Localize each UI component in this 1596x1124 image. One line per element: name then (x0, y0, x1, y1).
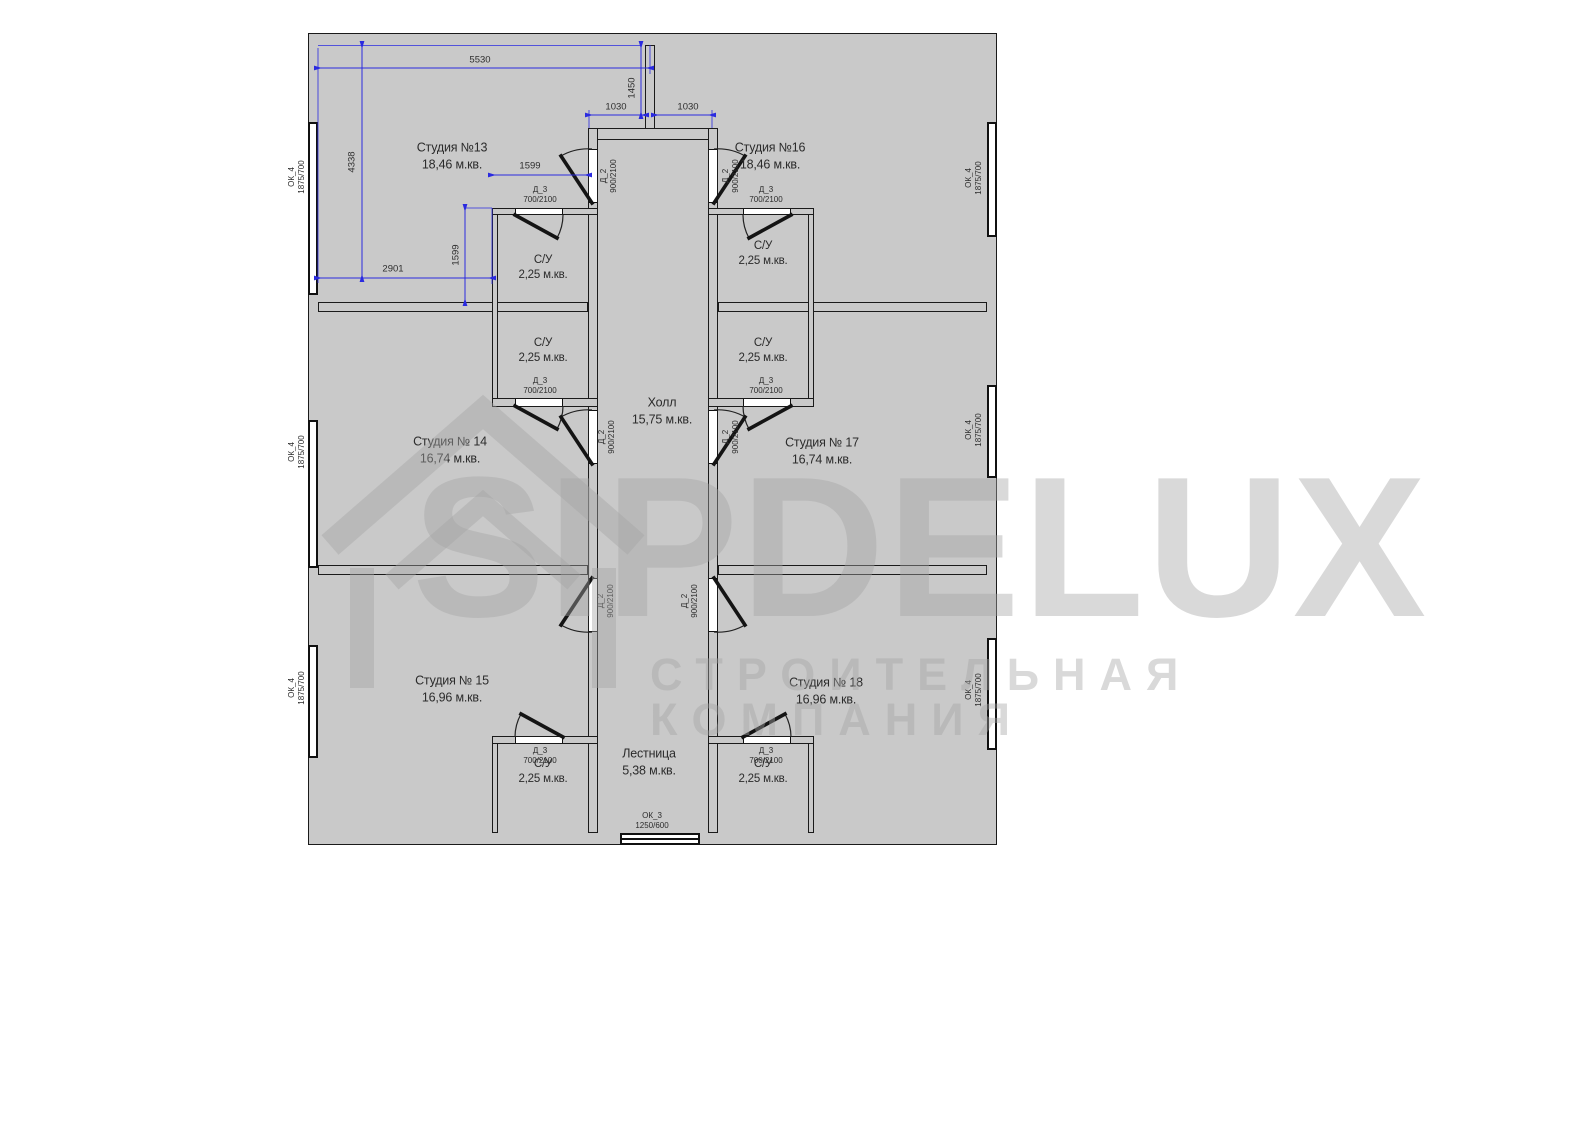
window-label-ok4: ОК_4 1875/700 (964, 161, 984, 194)
room-label-studio13: Студия №13 18,46 м.кв. (417, 140, 488, 173)
room-label-hall: Холл 15,75 м.кв. (632, 395, 692, 428)
door-label-d2: Д_2 900/2100 (597, 420, 617, 453)
dimension-1030-right: 1030 (677, 102, 698, 113)
room-label-stairs: Лестница 5,38 м.кв. (622, 746, 676, 779)
area-label: 16,74 м.кв. (792, 452, 852, 466)
area-label: 16,74 м.кв. (420, 451, 480, 465)
window-label-ok4: ОК_4 1875/700 (287, 671, 307, 704)
door-label-d3: Д_3 700/2100 (523, 746, 556, 766)
area-label: 2,25 м.кв. (518, 773, 567, 785)
dimension-lines (318, 45, 712, 302)
door-label-d2: Д_2 900/2100 (596, 584, 616, 617)
area-label: 2,25 м.кв. (518, 269, 567, 281)
door-label-d3: Д_3 700/2100 (523, 185, 556, 205)
room-label-bathroom: С/У 2,25 м.кв. (738, 336, 787, 366)
door-label-d3: Д_3 700/2100 (749, 376, 782, 396)
window-label-ok4: ОК_4 1875/700 (287, 435, 307, 468)
door-label-d2: Д_2 900/2100 (721, 159, 741, 192)
room-label-studio17: Студия № 17 16,74 м.кв. (785, 435, 859, 468)
area-label: 15,75 м.кв. (632, 412, 692, 426)
door-label-d3: Д_3 700/2100 (749, 746, 782, 766)
area-label: 2,25 м.кв. (738, 255, 787, 267)
door-label-d3: Д_3 700/2100 (749, 185, 782, 205)
area-label: 18,46 м.кв. (422, 157, 482, 171)
dimension-1599-height: 1599 (451, 244, 462, 265)
room-label-bathroom: С/У 2,25 м.кв. (738, 239, 787, 269)
dimension-5530: 5530 (469, 55, 490, 66)
room-label-studio16: Студия №16 18,46 м.кв. (735, 140, 806, 173)
room-label-studio14: Студия № 14 16,74 м.кв. (413, 434, 487, 467)
floor-plan: Студия №13 18,46 м.кв. Студия №16 18,46 … (0, 0, 1596, 1124)
room-label-studio18: Студия № 18 16,96 м.кв. (789, 675, 863, 708)
door-label-d2: Д_2 900/2100 (680, 584, 700, 617)
dimension-2901: 2901 (382, 264, 403, 275)
window-label-ok4: ОК_4 1875/700 (964, 673, 984, 706)
area-label: 2,25 м.кв. (738, 773, 787, 785)
dimension-1599-width: 1599 (519, 161, 540, 172)
window-label-ok4: ОК_4 1875/700 (964, 413, 984, 446)
dimension-1450: 1450 (627, 77, 638, 98)
area-label: 2,25 м.кв. (738, 352, 787, 364)
dimension-extension-lines (318, 45, 712, 284)
door-label-d3: Д_3 700/2100 (523, 376, 556, 396)
dimension-1030-left: 1030 (605, 102, 626, 113)
area-label: 5,38 м.кв. (622, 763, 675, 777)
dimension-4338: 4338 (347, 151, 358, 172)
room-label-studio15: Студия № 15 16,96 м.кв. (415, 673, 489, 706)
door-label-d2: Д_2 900/2100 (721, 420, 741, 453)
area-label: 2,25 м.кв. (518, 352, 567, 364)
room-label-bathroom: С/У 2,25 м.кв. (518, 336, 567, 366)
area-label: 18,46 м.кв. (740, 157, 800, 171)
area-label: 16,96 м.кв. (422, 690, 482, 704)
window-label-ok3: ОК_3 1250/600 (635, 811, 668, 831)
window-label-ok4: ОК_4 1875/700 (287, 160, 307, 193)
room-label-bathroom: С/У 2,25 м.кв. (518, 253, 567, 283)
door-label-d2: Д_2 900/2100 (599, 159, 619, 192)
area-label: 16,96 м.кв. (796, 692, 856, 706)
